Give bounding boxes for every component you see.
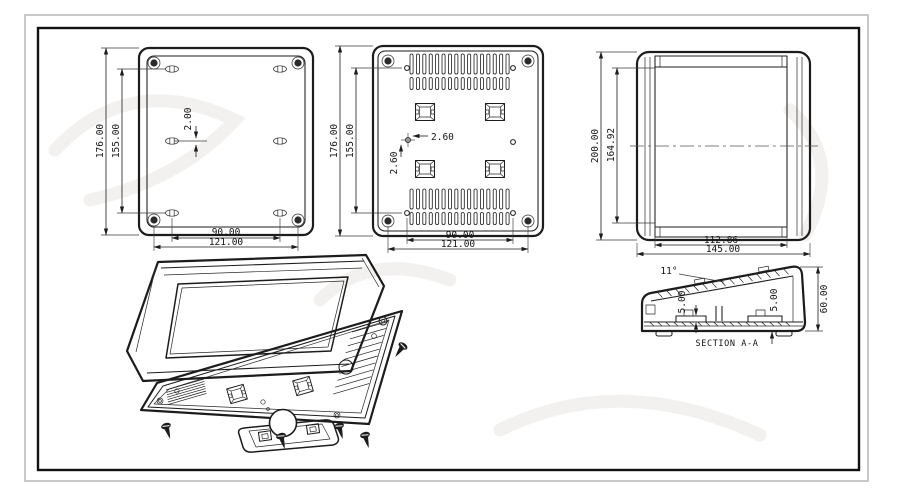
back-pilot-holes: [405, 66, 516, 216]
screw-icon: [160, 422, 175, 441]
section-view: 11° 5.00 5.00 60.00 SECTION A-A: [642, 266, 830, 349]
dim-front-mount-width: 121.00: [209, 237, 244, 248]
dim-side-inner-height: 164.92: [606, 128, 617, 162]
front-corner-screws: [148, 57, 304, 226]
screw-hole-icon: [522, 215, 534, 227]
plate-square-hole: [258, 431, 271, 442]
back-dimensions: 176.00 155.00 2.60 2.60 90.00 121.00: [329, 46, 528, 253]
boss-icon: [416, 161, 435, 178]
side-dimensions: 200.00 164.92 112.86 145.00: [590, 52, 810, 257]
technical-drawing-canvas: 176.00 155.00 2.00 90.00 121.00: [0, 0, 900, 500]
dim-back-height: 176.00: [329, 124, 340, 159]
screw-hole-icon: [382, 55, 394, 67]
dim-back-hole-spacing-v: 155.00: [345, 124, 356, 159]
dim-section-height: 60.00: [819, 284, 830, 313]
screw-hole-icon: [382, 215, 394, 227]
dim-back-mount-width: 121.00: [441, 239, 476, 250]
section-label: SECTION A-A: [696, 339, 759, 349]
vent-slots-bottom-row1: [410, 189, 509, 209]
dim-front-hole-spacing-v: 155.00: [111, 124, 122, 159]
boss-icon: [227, 384, 248, 403]
vent-slots-bottom-row2: [410, 213, 509, 225]
technical-drawing-page: 176.00 155.00 2.00 90.00 121.00: [0, 0, 900, 500]
screw-hole-icon: [522, 55, 534, 67]
front-inner-outline: [147, 56, 305, 227]
side-panel-groove: [655, 67, 787, 227]
cover-front-panel: [166, 277, 348, 358]
dim-front-height: 176.00: [95, 124, 106, 159]
dim-side-height: 200.00: [590, 129, 601, 164]
boss-icon: [416, 104, 435, 121]
back-screw-bosses: [416, 104, 505, 178]
screw-hole-icon: [292, 214, 304, 226]
boss-icon: [486, 104, 505, 121]
vent-slots-top-row2: [410, 78, 509, 90]
screw-icon: [391, 341, 409, 360]
boss-icon: [486, 161, 505, 178]
dim-section-angle: 11°: [660, 266, 677, 277]
dim-back-offset-y: 2.60: [389, 151, 400, 174]
plate-dome: [270, 410, 297, 437]
screw-hole-icon: [148, 57, 160, 69]
side-view: 200.00 164.92 112.86 145.00: [590, 52, 818, 257]
vent-slots-top-row1: [410, 54, 509, 74]
side-top-rail: [655, 56, 787, 67]
screw-hole-icon: [148, 214, 160, 226]
section-hatching-bottom: [650, 323, 790, 326]
dim-front-center-offset: 2.00: [183, 107, 194, 130]
dim-section-boss-left: 5.00: [677, 290, 688, 313]
boss-icon: [293, 376, 314, 395]
exploded-view: [127, 255, 409, 452]
front-outer-outline: [139, 48, 313, 235]
plate-square-hole: [306, 424, 319, 435]
dim-section-boss-right: 5.00: [769, 288, 780, 311]
dim-back-offset-x: 2.60: [431, 132, 454, 143]
back-panel-view: 176.00 155.00 2.60 2.60 90.00 121.00: [329, 46, 543, 253]
screw-hole-icon: [292, 57, 304, 69]
dim-side-depth: 145.00: [706, 244, 741, 255]
screw-icon: [359, 431, 373, 450]
